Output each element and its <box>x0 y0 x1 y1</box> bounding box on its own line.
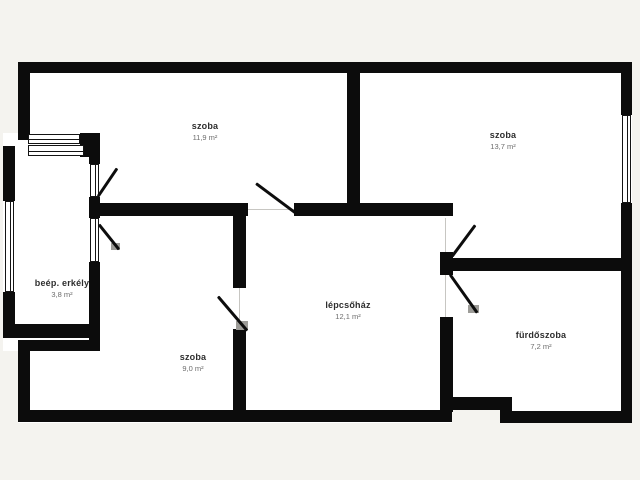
wall-segment <box>440 317 453 412</box>
window-icon <box>28 134 80 144</box>
wall-segment <box>500 397 512 423</box>
wall-segment <box>621 203 632 423</box>
floor-area <box>3 133 100 351</box>
wall-segment <box>233 329 246 410</box>
door-threshold <box>445 218 446 252</box>
wall-notch <box>452 410 500 423</box>
door-threshold <box>445 275 446 317</box>
wall-segment <box>18 62 632 73</box>
wall-segment <box>89 262 100 351</box>
wall-segment <box>3 146 15 201</box>
wall-segment <box>18 340 30 422</box>
wall-segment <box>233 216 246 288</box>
window-icon <box>5 201 14 292</box>
wall-segment <box>621 62 632 115</box>
wall-segment <box>18 410 452 422</box>
wall-segment <box>347 62 360 216</box>
wall-segment <box>500 411 632 423</box>
floor-plan: szoba11,9 m²szoba13,7 m²lépcsőház12,1 m²… <box>0 0 640 480</box>
wall-segment <box>440 258 632 271</box>
wall-segment <box>18 62 30 140</box>
wall-segment <box>294 203 453 216</box>
wall-segment <box>18 340 98 351</box>
window-icon <box>622 115 631 203</box>
wall-segment <box>8 324 95 338</box>
wall-segment <box>97 203 248 216</box>
window-icon <box>28 145 84 156</box>
